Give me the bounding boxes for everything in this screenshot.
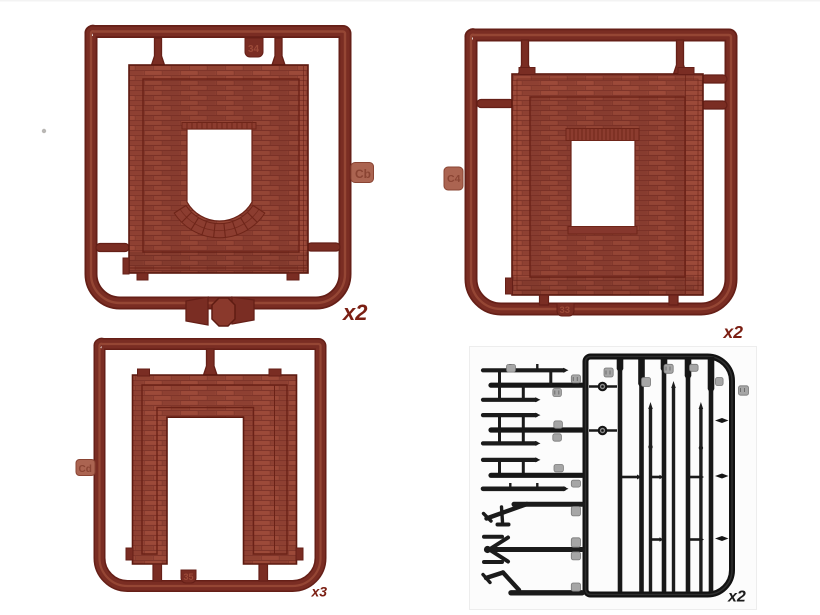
- svg-text:Cd: Cd: [79, 464, 92, 475]
- svg-text:35: 35: [184, 572, 194, 582]
- svg-text:x2: x2: [723, 322, 744, 342]
- svg-text:34: 34: [248, 44, 260, 55]
- svg-text:Cb: Cb: [355, 167, 371, 181]
- svg-text:C4: C4: [447, 173, 461, 185]
- svg-text:33: 33: [560, 305, 571, 316]
- svg-text:x2: x2: [727, 589, 746, 606]
- svg-text:x2: x2: [342, 300, 368, 325]
- svg-text:x3: x3: [311, 584, 328, 600]
